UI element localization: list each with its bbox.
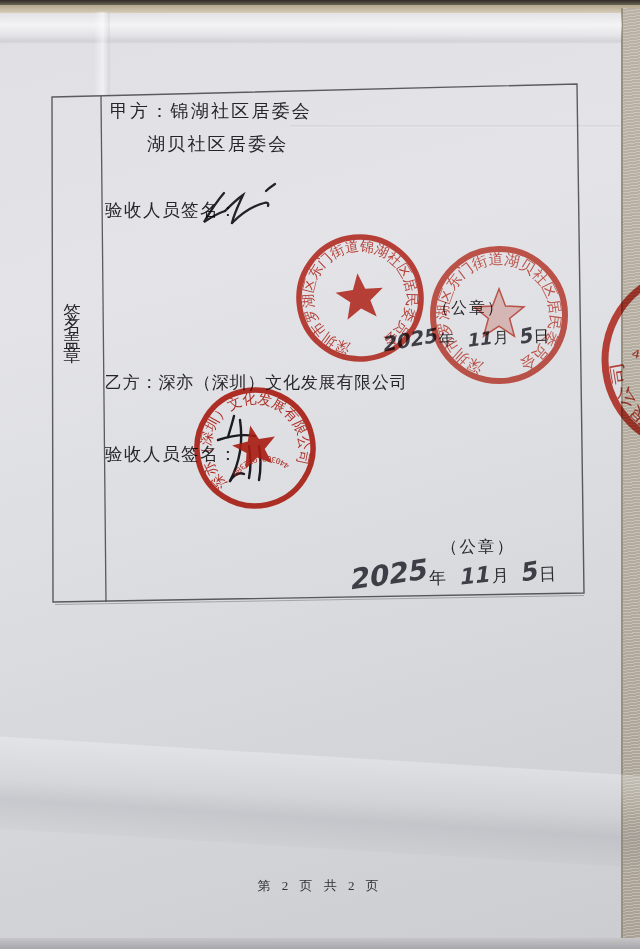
party-a-seal-note: （公章） [433,298,505,319]
party-b-date-year-unit: 年 [429,566,447,590]
party-a-sign-label: 验收人员签名： [105,198,238,222]
party-a-name-line1: 甲方：锦湖社区居委会 [110,99,312,123]
party-b-date-month-unit: 月 [491,564,509,588]
party-a-name-line2: 湖贝社区居委会 [147,132,288,156]
party-a-date-month: 11 [465,327,492,351]
scanned-document-page: 甲方：锦湖社区居委会 湖贝社区居委会 验收人员签名： （公章） 乙方：深亦（深圳… [0,0,640,949]
scan-edge-bottom [0,938,640,949]
party-a-date-day: 5 [515,323,534,349]
party-a-date-month-unit: 月 [493,327,509,349]
paper-crease-vertical [94,12,110,96]
row-label-sign-and-seal: 签名盖章 [60,289,84,345]
page-number-footer: 第 2 页 共 2 页 [0,877,640,895]
party-b-date-year: 2025 [346,553,428,597]
party-b-date-day: 5 [516,556,538,588]
party-b-date-day-unit: 日 [539,562,557,586]
party-b-date: 2025 年 11 月 5 日 [347,552,556,592]
party-b-date-month: 11 [457,562,490,590]
party-b-name-line: 乙方：深亦（深圳）文化发展有限公司 [105,371,408,394]
paper-crease-middle [290,125,620,128]
party-a-date-year-unit: 年 [438,329,454,351]
party-a-date-day-unit: 日 [533,326,549,348]
party-b-sign-label: 验收人员签名： [105,442,238,466]
